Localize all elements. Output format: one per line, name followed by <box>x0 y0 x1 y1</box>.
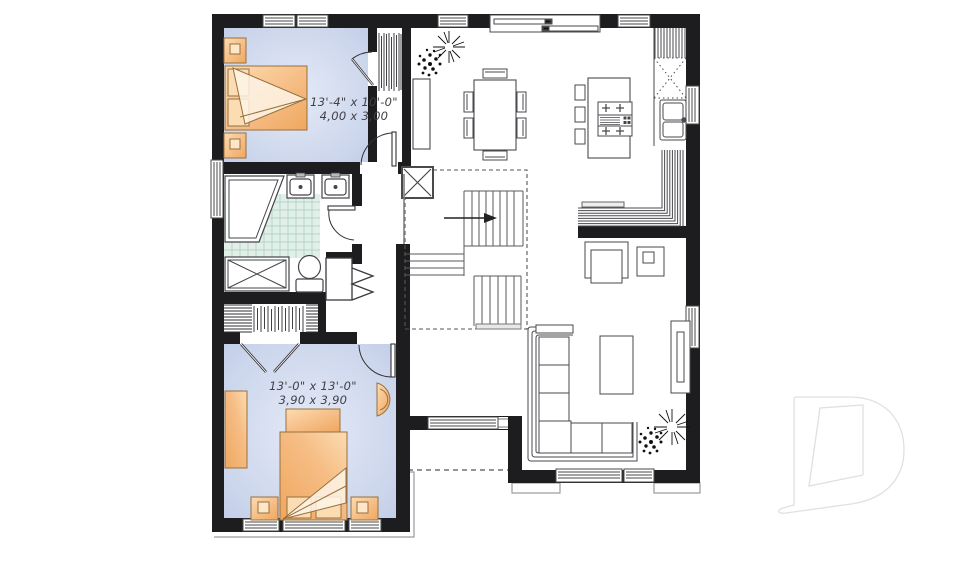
porch-step-left <box>512 483 560 493</box>
kitchen-sink[interactable] <box>660 100 686 140</box>
window-bedroom2-a <box>243 519 279 531</box>
lamp-icon <box>258 502 269 513</box>
dresser <box>225 391 247 468</box>
armchair[interactable] <box>585 242 628 283</box>
vanity-sink-right <box>322 173 349 198</box>
bedroom2-dim-metric: 3,90 x 3,90 <box>279 393 348 407</box>
nightstand-1-top <box>224 38 246 63</box>
window-dining-top <box>618 15 650 27</box>
bedroom2-dim-imperial: 13'-0" x 13'-0" <box>269 379 357 393</box>
window-bedroom1-a <box>263 15 295 27</box>
corner-cabinet-dotted <box>654 58 686 98</box>
kitchen-island-group <box>575 78 632 158</box>
staircase <box>402 167 527 329</box>
window-kitchen-top <box>438 15 468 27</box>
patio-sliding-door[interactable] <box>490 15 600 32</box>
counter-top-stripes <box>655 28 685 58</box>
floor-plan-canvas: 13'-4" x 10'-0" 4,00 x 3,00 13'-0" x 13'… <box>0 0 960 569</box>
wall-closet2-east <box>318 292 326 344</box>
living-room <box>528 242 690 461</box>
lamp-icon <box>230 139 240 149</box>
porch-step-right <box>654 483 700 493</box>
wall-bedroom1-closet-a <box>368 26 377 52</box>
cooktop <box>598 102 632 136</box>
wall-left <box>212 14 224 532</box>
window-bedroom2-b <box>283 519 345 531</box>
plant-bush-living <box>639 427 663 455</box>
wall-linen-top <box>326 252 362 258</box>
closet2-shelf-left <box>224 305 252 332</box>
bedroom1-dim-metric: 4,00 x 3,00 <box>320 109 389 123</box>
wall-stair-west <box>396 244 410 332</box>
kitchen-bar-counter-stripes <box>578 150 683 226</box>
dining-table <box>474 80 516 150</box>
side-table-lamp <box>637 247 664 276</box>
wall-closet1-right <box>402 26 411 162</box>
wall-bath-east-upper <box>352 174 362 206</box>
linen-bifold-door[interactable] <box>352 268 373 300</box>
bar-shelf <box>582 202 624 207</box>
toilet[interactable] <box>296 256 323 293</box>
plant-starburst-kitchen <box>433 31 465 63</box>
lamp-icon <box>357 502 368 513</box>
bed-2-bench <box>286 409 340 432</box>
linen-closet <box>326 258 352 300</box>
dining-set <box>413 69 526 160</box>
bedroom1-dim-imperial: 13'-4" x 10'-0" <box>310 95 398 109</box>
wall-bath-closet <box>212 292 326 304</box>
window-bathroom-left <box>211 160 223 218</box>
closet2-shelf-right <box>306 305 318 332</box>
wall-living-west <box>508 416 522 474</box>
stair-direction-arrow <box>444 213 497 223</box>
nightstand-2-left <box>251 497 278 520</box>
window-living-bottom-a <box>556 469 622 482</box>
tv-console <box>671 321 690 393</box>
plant-bush-kitchen <box>418 49 442 77</box>
half-wall-kitchen <box>578 226 688 238</box>
stair-landing <box>405 246 464 276</box>
plant-starburst-living <box>654 409 690 445</box>
stair-base-step <box>476 324 521 329</box>
coffee-table <box>600 336 633 394</box>
stair-lower-flight <box>474 276 521 326</box>
window-bedroom2-c <box>349 519 381 531</box>
nightstand-1-bottom <box>224 133 246 158</box>
closet1-hanger-rod <box>379 33 401 91</box>
window-living-bottom-b <box>624 469 654 482</box>
drummond-watermark-logo <box>779 397 904 513</box>
window-foyer-front <box>428 417 498 429</box>
window-bedroom1-b <box>297 15 328 27</box>
shower <box>225 257 289 291</box>
window-kitchen-right <box>686 86 699 124</box>
door-bathroom[interactable] <box>328 206 355 240</box>
wall-right <box>686 14 700 483</box>
closet2-hanger-rod <box>254 306 303 332</box>
vanity-sink-left <box>287 173 314 198</box>
lamp-icon <box>230 44 240 54</box>
buffet-cabinet <box>413 79 430 149</box>
nightstand-2-right <box>351 497 378 520</box>
wall-bedroom2-right <box>396 332 410 532</box>
island-stools[interactable] <box>575 85 585 144</box>
floor-plan-drawing: 13'-4" x 10'-0" 4,00 x 3,00 13'-0" x 13'… <box>0 0 960 569</box>
